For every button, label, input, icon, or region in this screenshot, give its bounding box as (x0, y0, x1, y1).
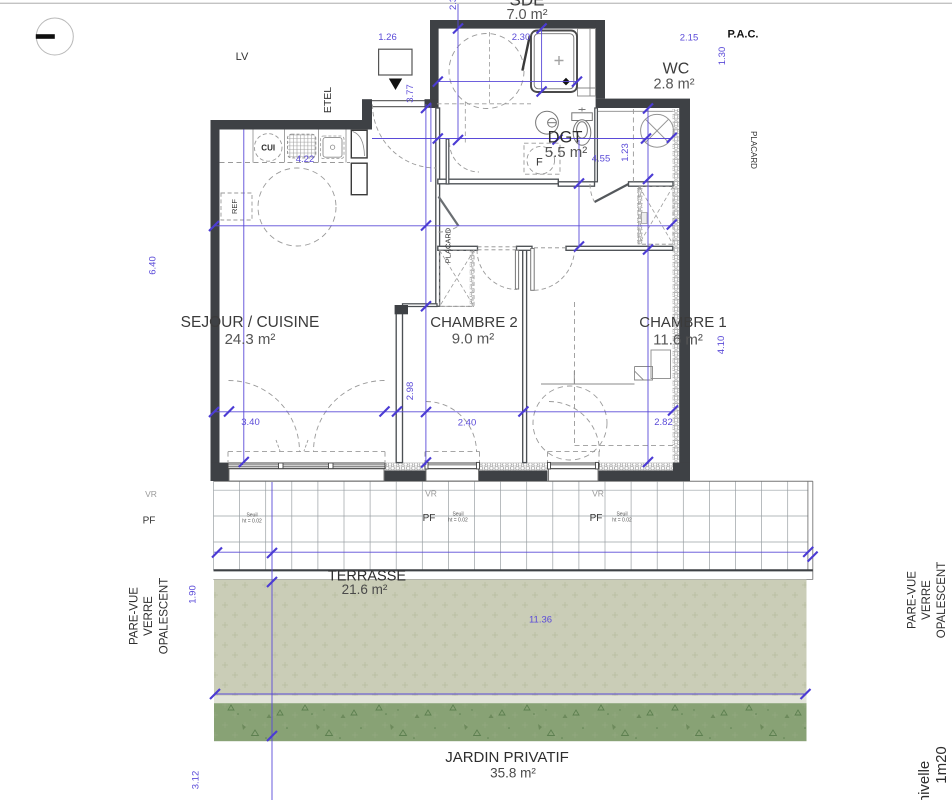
svg-text:2.40: 2.40 (458, 418, 477, 429)
svg-text:4.55: 4.55 (592, 154, 611, 165)
svg-text:REF: REF (230, 199, 239, 214)
svg-text:6.40: 6.40 (148, 256, 159, 275)
svg-text:5.5 m²: 5.5 m² (545, 144, 588, 161)
svg-text:JARDIN PRIVATIF: JARDIN PRIVATIF (445, 749, 569, 766)
svg-text:3.40: 3.40 (241, 417, 260, 428)
svg-text:ETEL: ETEL (322, 87, 334, 113)
svg-text:2.30: 2.30 (512, 32, 531, 43)
svg-text:OPALESCENT: OPALESCENT (936, 562, 948, 638)
svg-text:1.26: 1.26 (378, 32, 397, 43)
svg-text:VERRE: VERRE (921, 580, 933, 620)
svg-text:1.23: 1.23 (620, 143, 631, 162)
svg-text:VR: VR (425, 489, 437, 499)
svg-text:PF: PF (590, 513, 603, 524)
svg-text:2.30: 2.30 (448, 0, 459, 10)
svg-text:CHAMBRE 1: CHAMBRE 1 (639, 314, 727, 331)
svg-text:24.3 m²: 24.3 m² (225, 331, 276, 348)
svg-text:35.8 m²: 35.8 m² (490, 766, 536, 781)
svg-text:WC: WC (663, 61, 690, 78)
svg-text:3.77: 3.77 (405, 84, 416, 103)
svg-text:11.36: 11.36 (529, 615, 552, 626)
svg-text:CHAMBRE 2: CHAMBRE 2 (430, 314, 518, 331)
svg-text:VR: VR (592, 489, 604, 499)
svg-text:VR: VR (145, 489, 157, 499)
svg-text:P.A.C.: P.A.C. (728, 29, 759, 41)
svg-text:LV: LV (236, 51, 249, 63)
svg-text:OPALESCENT: OPALESCENT (159, 578, 171, 654)
svg-text:PF: PF (423, 513, 436, 524)
svg-text:2.82: 2.82 (654, 417, 673, 428)
svg-text:nivelle: nivelle (916, 761, 933, 800)
svg-text:11.6 m²: 11.6 m² (653, 332, 703, 349)
svg-text:SEJOUR / CUISINE: SEJOUR / CUISINE (181, 314, 320, 331)
svg-text:1m20: 1m20 (933, 746, 950, 784)
svg-text:CUI: CUI (261, 143, 275, 152)
svg-text:4.22: 4.22 (296, 154, 315, 165)
svg-text:PARE-VUE: PARE-VUE (907, 571, 919, 629)
svg-text:ht = 0.02: ht = 0.02 (612, 518, 632, 524)
svg-text:1.90: 1.90 (188, 585, 199, 604)
svg-text:21.6 m²: 21.6 m² (342, 582, 388, 597)
svg-text:F: F (536, 157, 543, 169)
svg-text:9.0 m²: 9.0 m² (452, 331, 495, 348)
svg-text:4.10: 4.10 (716, 336, 727, 355)
svg-text:2.15: 2.15 (680, 33, 699, 44)
svg-text:2.8 m²: 2.8 m² (653, 77, 694, 93)
svg-text:2.98: 2.98 (405, 382, 416, 401)
svg-text:3.12: 3.12 (191, 771, 202, 790)
svg-text:PARE-VUE: PARE-VUE (129, 587, 141, 645)
svg-text:PF: PF (143, 516, 156, 527)
svg-text:1.30: 1.30 (717, 47, 728, 66)
svg-text:PLACARD: PLACARD (749, 131, 758, 169)
svg-text:ht = 0.02: ht = 0.02 (242, 519, 262, 525)
svg-text:VERRE: VERRE (143, 596, 155, 636)
svg-text:ht = 0.02: ht = 0.02 (448, 518, 468, 524)
svg-text:PLACARD: PLACARD (444, 227, 453, 263)
svg-text:7.0 m²: 7.0 m² (506, 7, 547, 23)
